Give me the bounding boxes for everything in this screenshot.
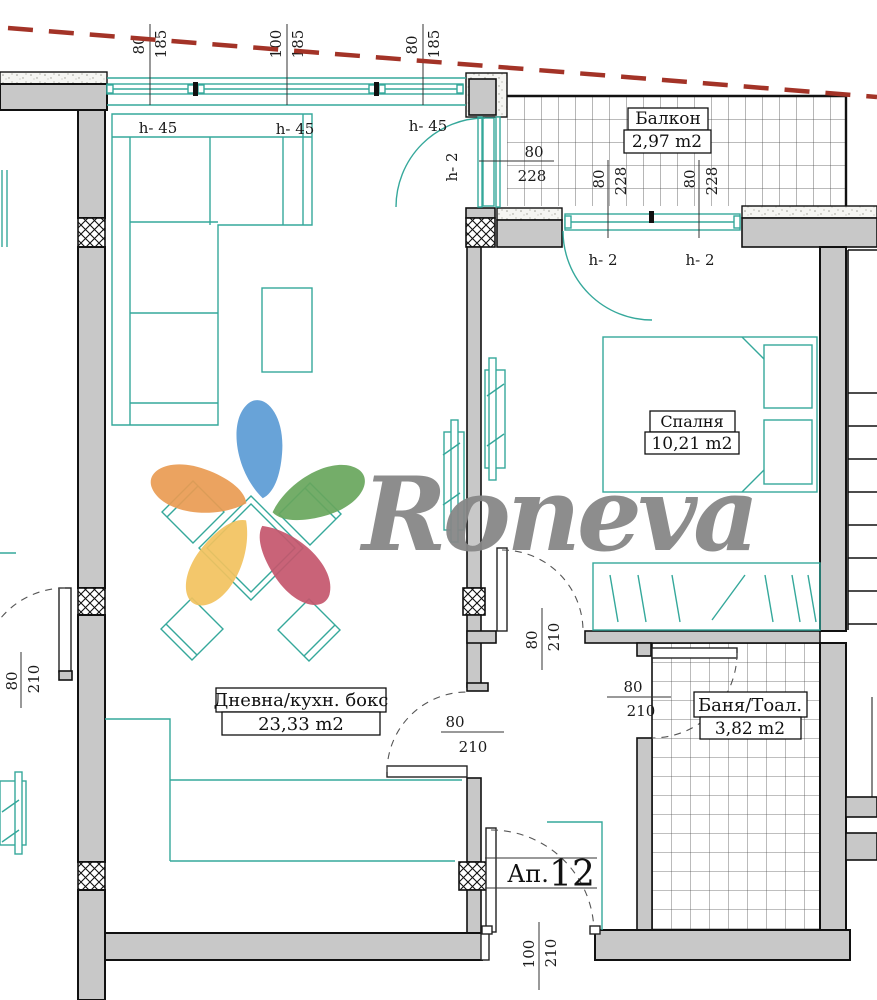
dim-entrance-h: 210 xyxy=(542,939,560,968)
bedroom-balcony-door-arc xyxy=(563,231,652,320)
dim-balc3-h: 228 xyxy=(703,167,721,196)
dim-top3-w: 80 xyxy=(403,35,421,54)
bedroom-label: Спалня 10,21 m2 xyxy=(645,411,739,454)
h2-label-1: h- 2 xyxy=(443,152,461,181)
bedroom-name: Спалня xyxy=(660,412,723,431)
dim-top2-h: 185 xyxy=(289,30,307,59)
living-name: Дневна/кухн. бокс xyxy=(214,690,389,711)
dim-living-door-w: 80 xyxy=(445,713,464,731)
dim-balc2-h: 228 xyxy=(612,167,630,196)
corner-sofa xyxy=(112,114,312,425)
dim-balc1-w: 80 xyxy=(524,143,543,161)
kitchen-counter xyxy=(105,719,462,861)
living-hall-door xyxy=(387,692,467,777)
apartment-label: Ап. 12 xyxy=(485,854,597,895)
dim-top2-w: 100 xyxy=(267,30,285,59)
dim-living-door-h: 210 xyxy=(459,738,488,756)
h45-label-2: h- 45 xyxy=(276,120,315,138)
bedroom-area: 10,21 m2 xyxy=(651,434,732,454)
bath-name: Баня/Тоал. xyxy=(698,695,802,716)
dim-balc2-w: 80 xyxy=(590,169,608,188)
bathroom-floor-tiles xyxy=(652,643,820,930)
neighbour-fragments xyxy=(0,170,16,553)
dim-neighbour-door-h: 210 xyxy=(25,665,43,694)
dim-entrance-w: 100 xyxy=(520,940,538,969)
balcony-label: Балкон 2,97 m2 xyxy=(624,108,711,153)
stairwell-steps xyxy=(848,250,877,797)
radiator-neighbour xyxy=(0,772,26,854)
apartment-number: 12 xyxy=(549,854,595,895)
bath-label: Баня/Тоал. 3,82 m2 xyxy=(694,692,807,739)
dim-bedroom-door-w: 80 xyxy=(523,630,541,649)
dim-bedroom-door-h: 210 xyxy=(545,623,563,652)
balcony-area: 2,97 m2 xyxy=(632,132,702,152)
dim-bath-door-w: 80 xyxy=(623,678,642,696)
dim-top1-h: 185 xyxy=(152,30,170,59)
h45-label-3: h- 45 xyxy=(409,117,448,135)
coffee-table xyxy=(262,288,312,372)
dim-neighbour-door-w: 80 xyxy=(3,671,21,690)
living-label: Дневна/кухн. бокс 23,33 m2 xyxy=(214,688,389,735)
floor-plan: 80 185 100 185 80 185 h- 45 h- 45 h- 45 … xyxy=(0,0,877,1000)
dim-balc3-w: 80 xyxy=(681,169,699,188)
h45-label-1: h- 45 xyxy=(139,119,178,137)
h2-label-2: h- 2 xyxy=(588,251,617,269)
bedroom-window xyxy=(565,211,740,230)
balcony-name: Балкон xyxy=(635,109,701,129)
dim-top3-h: 185 xyxy=(425,30,443,59)
h2-label-3: h- 2 xyxy=(685,251,714,269)
dim-bath-door-h: 210 xyxy=(627,702,656,720)
living-area: 23,33 m2 xyxy=(258,714,344,735)
bath-area: 3,82 m2 xyxy=(715,719,785,739)
apartment-prefix: Ап. xyxy=(507,860,549,888)
living-window-3 xyxy=(379,84,463,94)
dim-balc1-h: 228 xyxy=(518,167,547,185)
brand-name: Roneva xyxy=(359,455,755,575)
